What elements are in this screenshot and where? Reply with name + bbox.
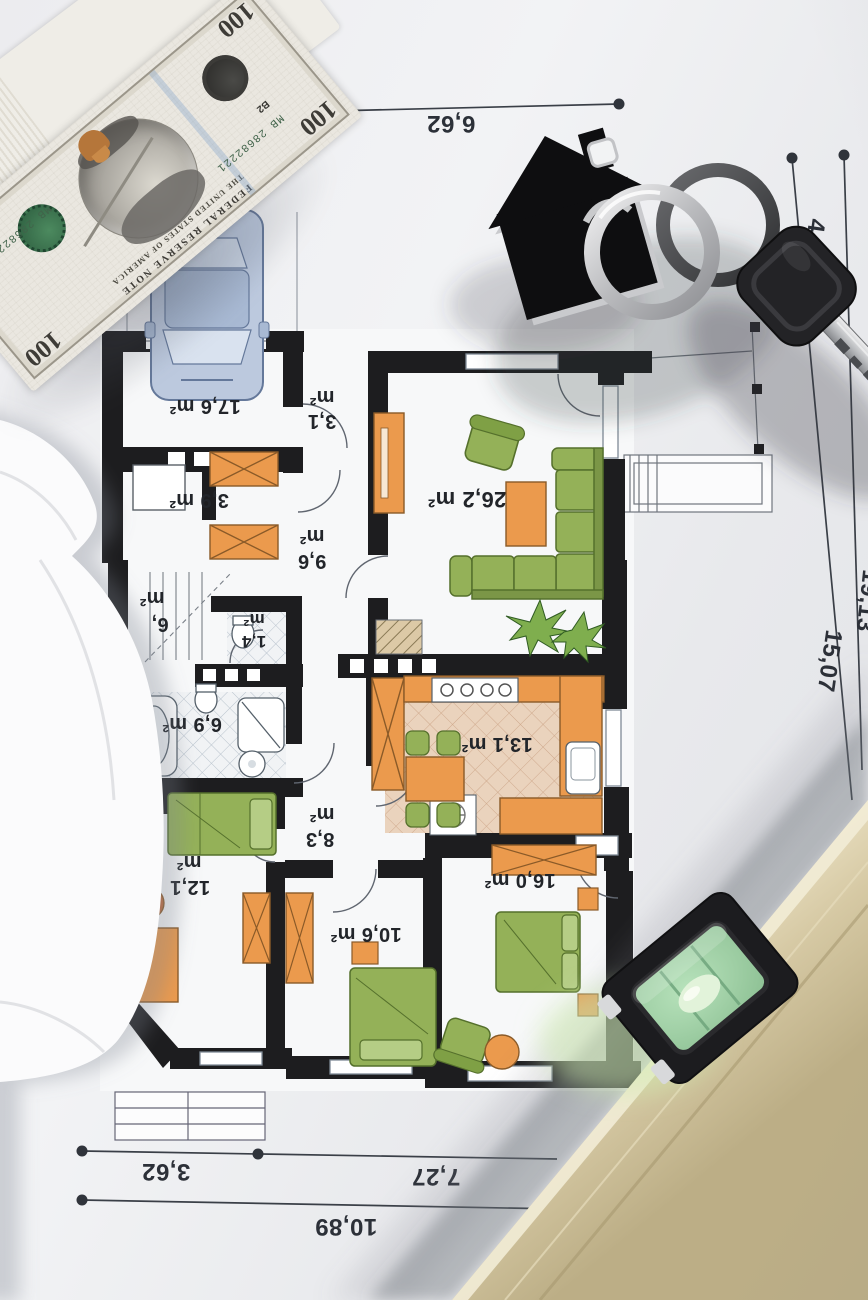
room-label-wc-value: 1,4 [241, 632, 266, 651]
room-label-hallway-unit: m² [299, 525, 324, 547]
dim-bottom-total: 10,89 [315, 1213, 378, 1240]
room-label-hall-value: 8,3 [306, 828, 335, 850]
room-label-bedroom3: 16,0m² [484, 869, 555, 891]
dim-bottom-right: 7,27 [412, 1163, 461, 1190]
room-label-bedroom1-unit: m² [176, 851, 201, 873]
floor-plan: 17,6m² m² 3,1 3,9m² m² 9,6 26,2m² m² 6, … [0, 0, 868, 1300]
dim-top: 6,62 [427, 110, 476, 137]
legend-table [115, 1092, 265, 1140]
room-label-garage: 17,6m² [169, 395, 240, 417]
room-label-bedroom2: 10,6m² [330, 923, 401, 945]
stove [432, 678, 518, 702]
room-label-hall-unit: m² [309, 803, 334, 825]
dim-right-upper: 4,06 [797, 217, 831, 269]
dim-bottom-left: 3,62 [142, 1158, 191, 1185]
car [145, 210, 269, 400]
tv-board [374, 413, 404, 513]
photo-scene: 17,6m² m² 3,1 3,9m² m² 9,6 26,2m² m² 6, … [0, 0, 868, 1300]
room-label-wc-unit: m² [243, 610, 264, 629]
dim-right-total: 19,13 [851, 568, 868, 633]
room-label-bedroom1-value: 12,1 [170, 876, 210, 898]
room-label-hallway-value: 9,6 [298, 550, 327, 572]
room-label-entry-value: 3,1 [308, 410, 337, 432]
dining-table [406, 757, 464, 801]
room-label-entry-unit: m² [309, 386, 334, 408]
basement-stairs [376, 620, 422, 654]
coffee-table [506, 482, 546, 546]
room-label-stairroom-value: 6, [151, 613, 168, 635]
room-label-living: 26,2m² [428, 487, 507, 512]
room-label-stairroom-unit: m² [139, 587, 164, 609]
room-label-kitchen: 13,1m² [461, 733, 532, 755]
